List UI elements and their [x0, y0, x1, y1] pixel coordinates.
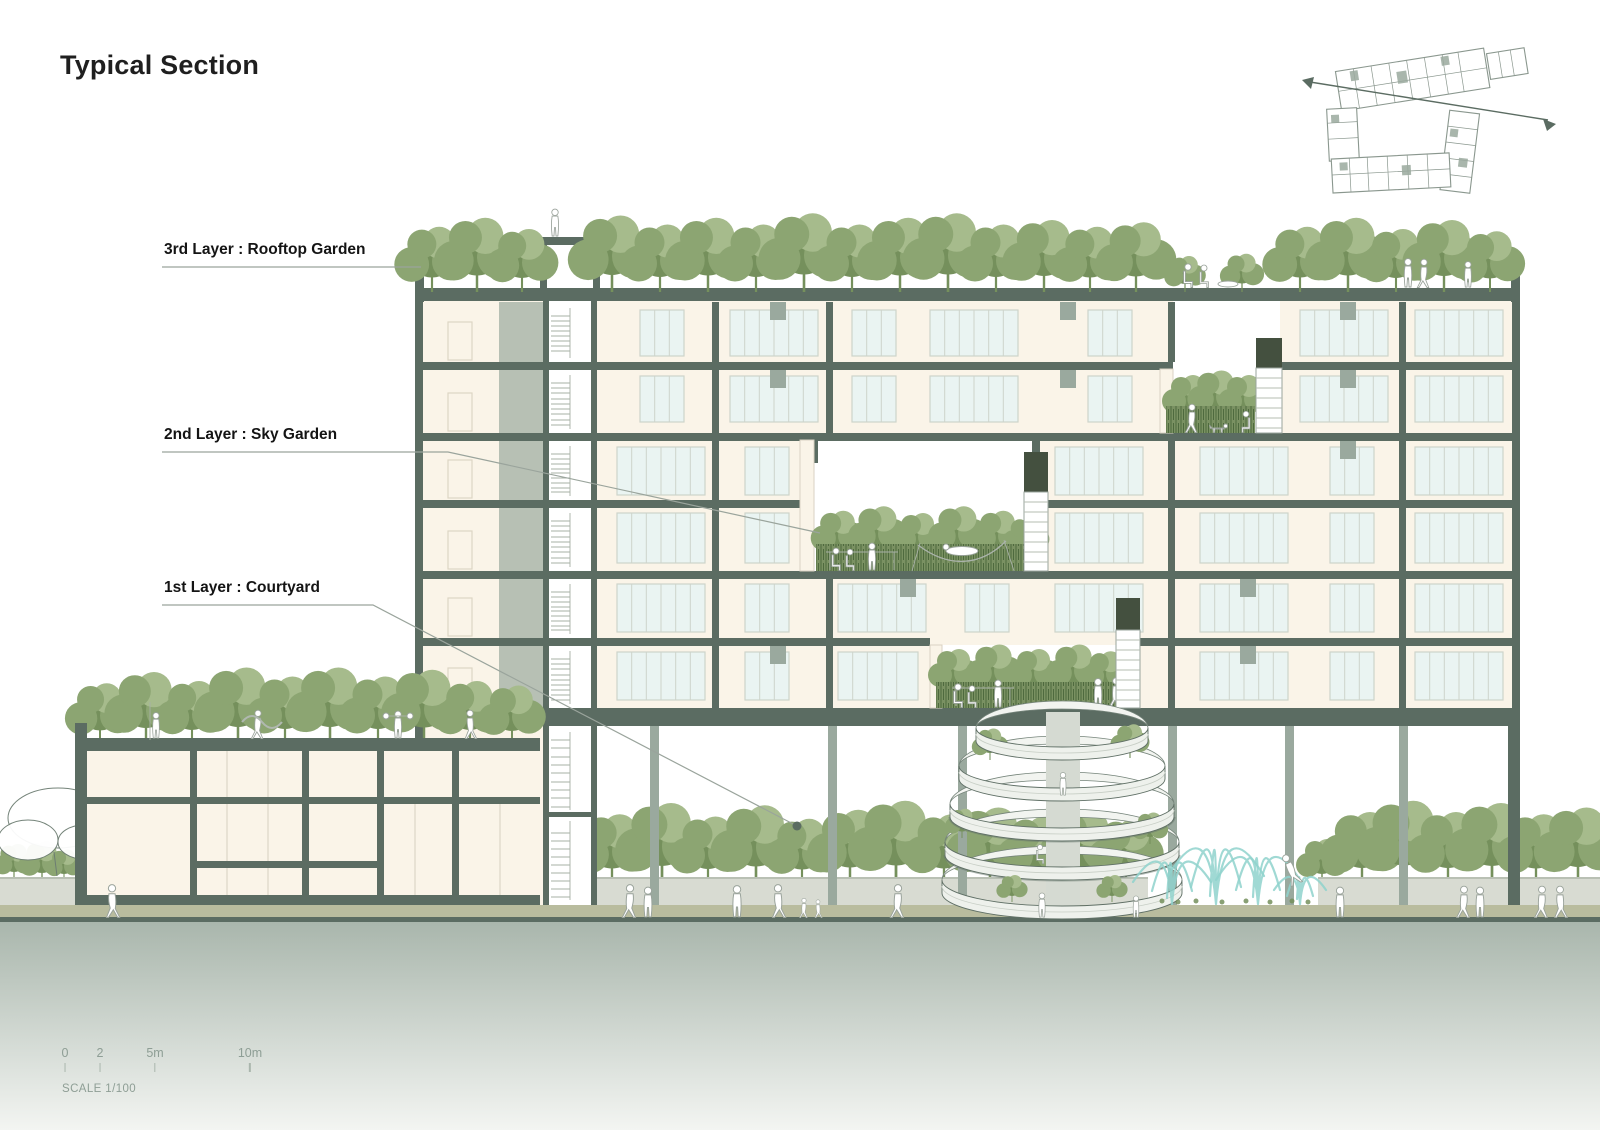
label-courtyard: 1st Layer : Courtyard — [164, 579, 320, 597]
page-title: Typical Section — [60, 50, 259, 81]
stair-shaft — [543, 300, 597, 905]
courtyard-building — [75, 702, 540, 908]
leader-dot — [793, 822, 802, 831]
terrace-louver — [1256, 338, 1282, 433]
architectural-sheet: Typical Section 3rd Layer : Rooftop Gard… — [0, 0, 1600, 1130]
garden-louver — [1116, 598, 1140, 708]
label-rooftop-garden: 3rd Layer : Rooftop Garden — [164, 241, 366, 259]
ground — [0, 916, 1600, 1130]
section-drawing — [0, 0, 1600, 1130]
key-plan — [1302, 42, 1556, 193]
label-sky-garden: 2nd Layer : Sky Garden — [164, 426, 337, 444]
sky-garden-louver — [1024, 452, 1048, 571]
walkway — [0, 905, 1600, 917]
